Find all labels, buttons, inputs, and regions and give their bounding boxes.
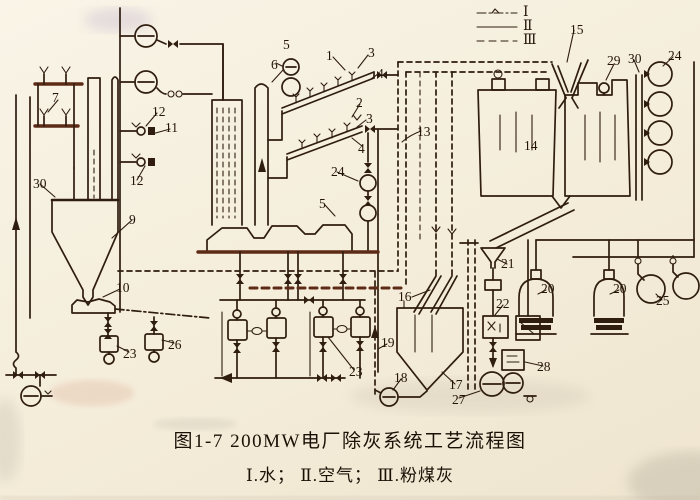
component-label-3-2: 3 — [368, 46, 375, 60]
trough-10 — [72, 299, 210, 339]
component-label-13-15: 13 — [417, 125, 431, 139]
distributor-15 — [552, 60, 588, 108]
component-label-12-14: 12 — [130, 174, 144, 188]
component-label-2-1: 2 — [356, 96, 363, 110]
component-label-16-18: 16 — [398, 290, 412, 304]
component-label-23-26: 23 — [123, 347, 137, 361]
caption-legend-text: Ⅰ.水； Ⅱ.空气； Ⅲ.粉煤灰 — [0, 461, 700, 486]
legend-numeral-2: Ⅱ — [523, 20, 533, 34]
component-label-5-7: 5 — [319, 197, 326, 211]
esp-bunkers — [198, 225, 378, 304]
legend-numeral-3: Ⅲ — [523, 34, 537, 48]
component-label-28-33: 28 — [537, 360, 551, 374]
component-label-6-8: 6 — [271, 58, 278, 72]
component-label-9-10: 9 — [129, 213, 136, 227]
component-label-3-3: 3 — [366, 112, 373, 126]
component-label-29-34: 29 — [607, 54, 621, 68]
component-label-26-31: 26 — [168, 338, 182, 352]
mill-column — [212, 44, 242, 225]
bottom-collector — [215, 373, 345, 383]
component-label-21-24: 21 — [501, 257, 515, 271]
component-label-10-11: 10 — [116, 281, 130, 295]
component-label-1-0: 1 — [326, 49, 333, 63]
component-label-23-27: 23 — [349, 365, 363, 379]
component-label-18-20: 18 — [394, 371, 408, 385]
component-label-30-36: 30 — [628, 52, 642, 66]
component-label-11-12: 11 — [165, 121, 178, 135]
component-label-7-9: 7 — [52, 91, 59, 105]
tank-14 — [478, 70, 574, 248]
component-label-12-13: 12 — [152, 105, 166, 119]
hopper-9 — [52, 200, 118, 305]
domes-20 — [516, 240, 628, 334]
component-label-25-30: 25 — [656, 294, 670, 308]
left-water-pumps — [120, 8, 223, 312]
component-label-4-5: 4 — [358, 142, 365, 156]
legend-lines — [477, 9, 517, 41]
pipe-30-circles-24 — [636, 62, 694, 257]
component-label-27-32: 27 — [452, 393, 466, 407]
component-label-5-6: 5 — [283, 38, 290, 52]
caption-title: 图1-7 200MW电厂除灰系统工艺流程图 — [0, 426, 700, 453]
component-label-20-23: 20 — [613, 282, 627, 296]
component-label-24-29: 24 — [668, 49, 682, 63]
feeder-boxes — [222, 300, 370, 378]
component-label-24-28: 24 — [331, 165, 345, 179]
figure-caption: 图1-7 200MW电厂除灰系统工艺流程图 Ⅰ.水； Ⅱ.空气； Ⅲ.粉煤灰 — [0, 426, 700, 486]
component-label-17-19: 17 — [449, 378, 463, 392]
component-label-30-35: 30 — [33, 177, 47, 191]
component-label-4-4: 4 — [377, 67, 384, 81]
ducts-left — [74, 77, 118, 200]
component-label-22-25: 22 — [496, 297, 510, 311]
flow-diagram-linework — [0, 0, 700, 500]
component-label-15-17: 15 — [570, 23, 584, 37]
component-label-20-22: 20 — [541, 282, 555, 296]
left-border-pipes — [6, 95, 56, 406]
center-duct-gauges-5-6 — [255, 59, 300, 225]
tank-29 — [565, 80, 630, 196]
component-label-19-21: 19 — [381, 336, 395, 350]
legend-numeral-1: Ⅰ — [523, 6, 529, 20]
scanned-diagram-page: 1233445567910111212131415161718192020212… — [0, 0, 700, 500]
component-label-14-16: 14 — [524, 139, 538, 153]
nozzles-11-12 — [120, 123, 155, 166]
